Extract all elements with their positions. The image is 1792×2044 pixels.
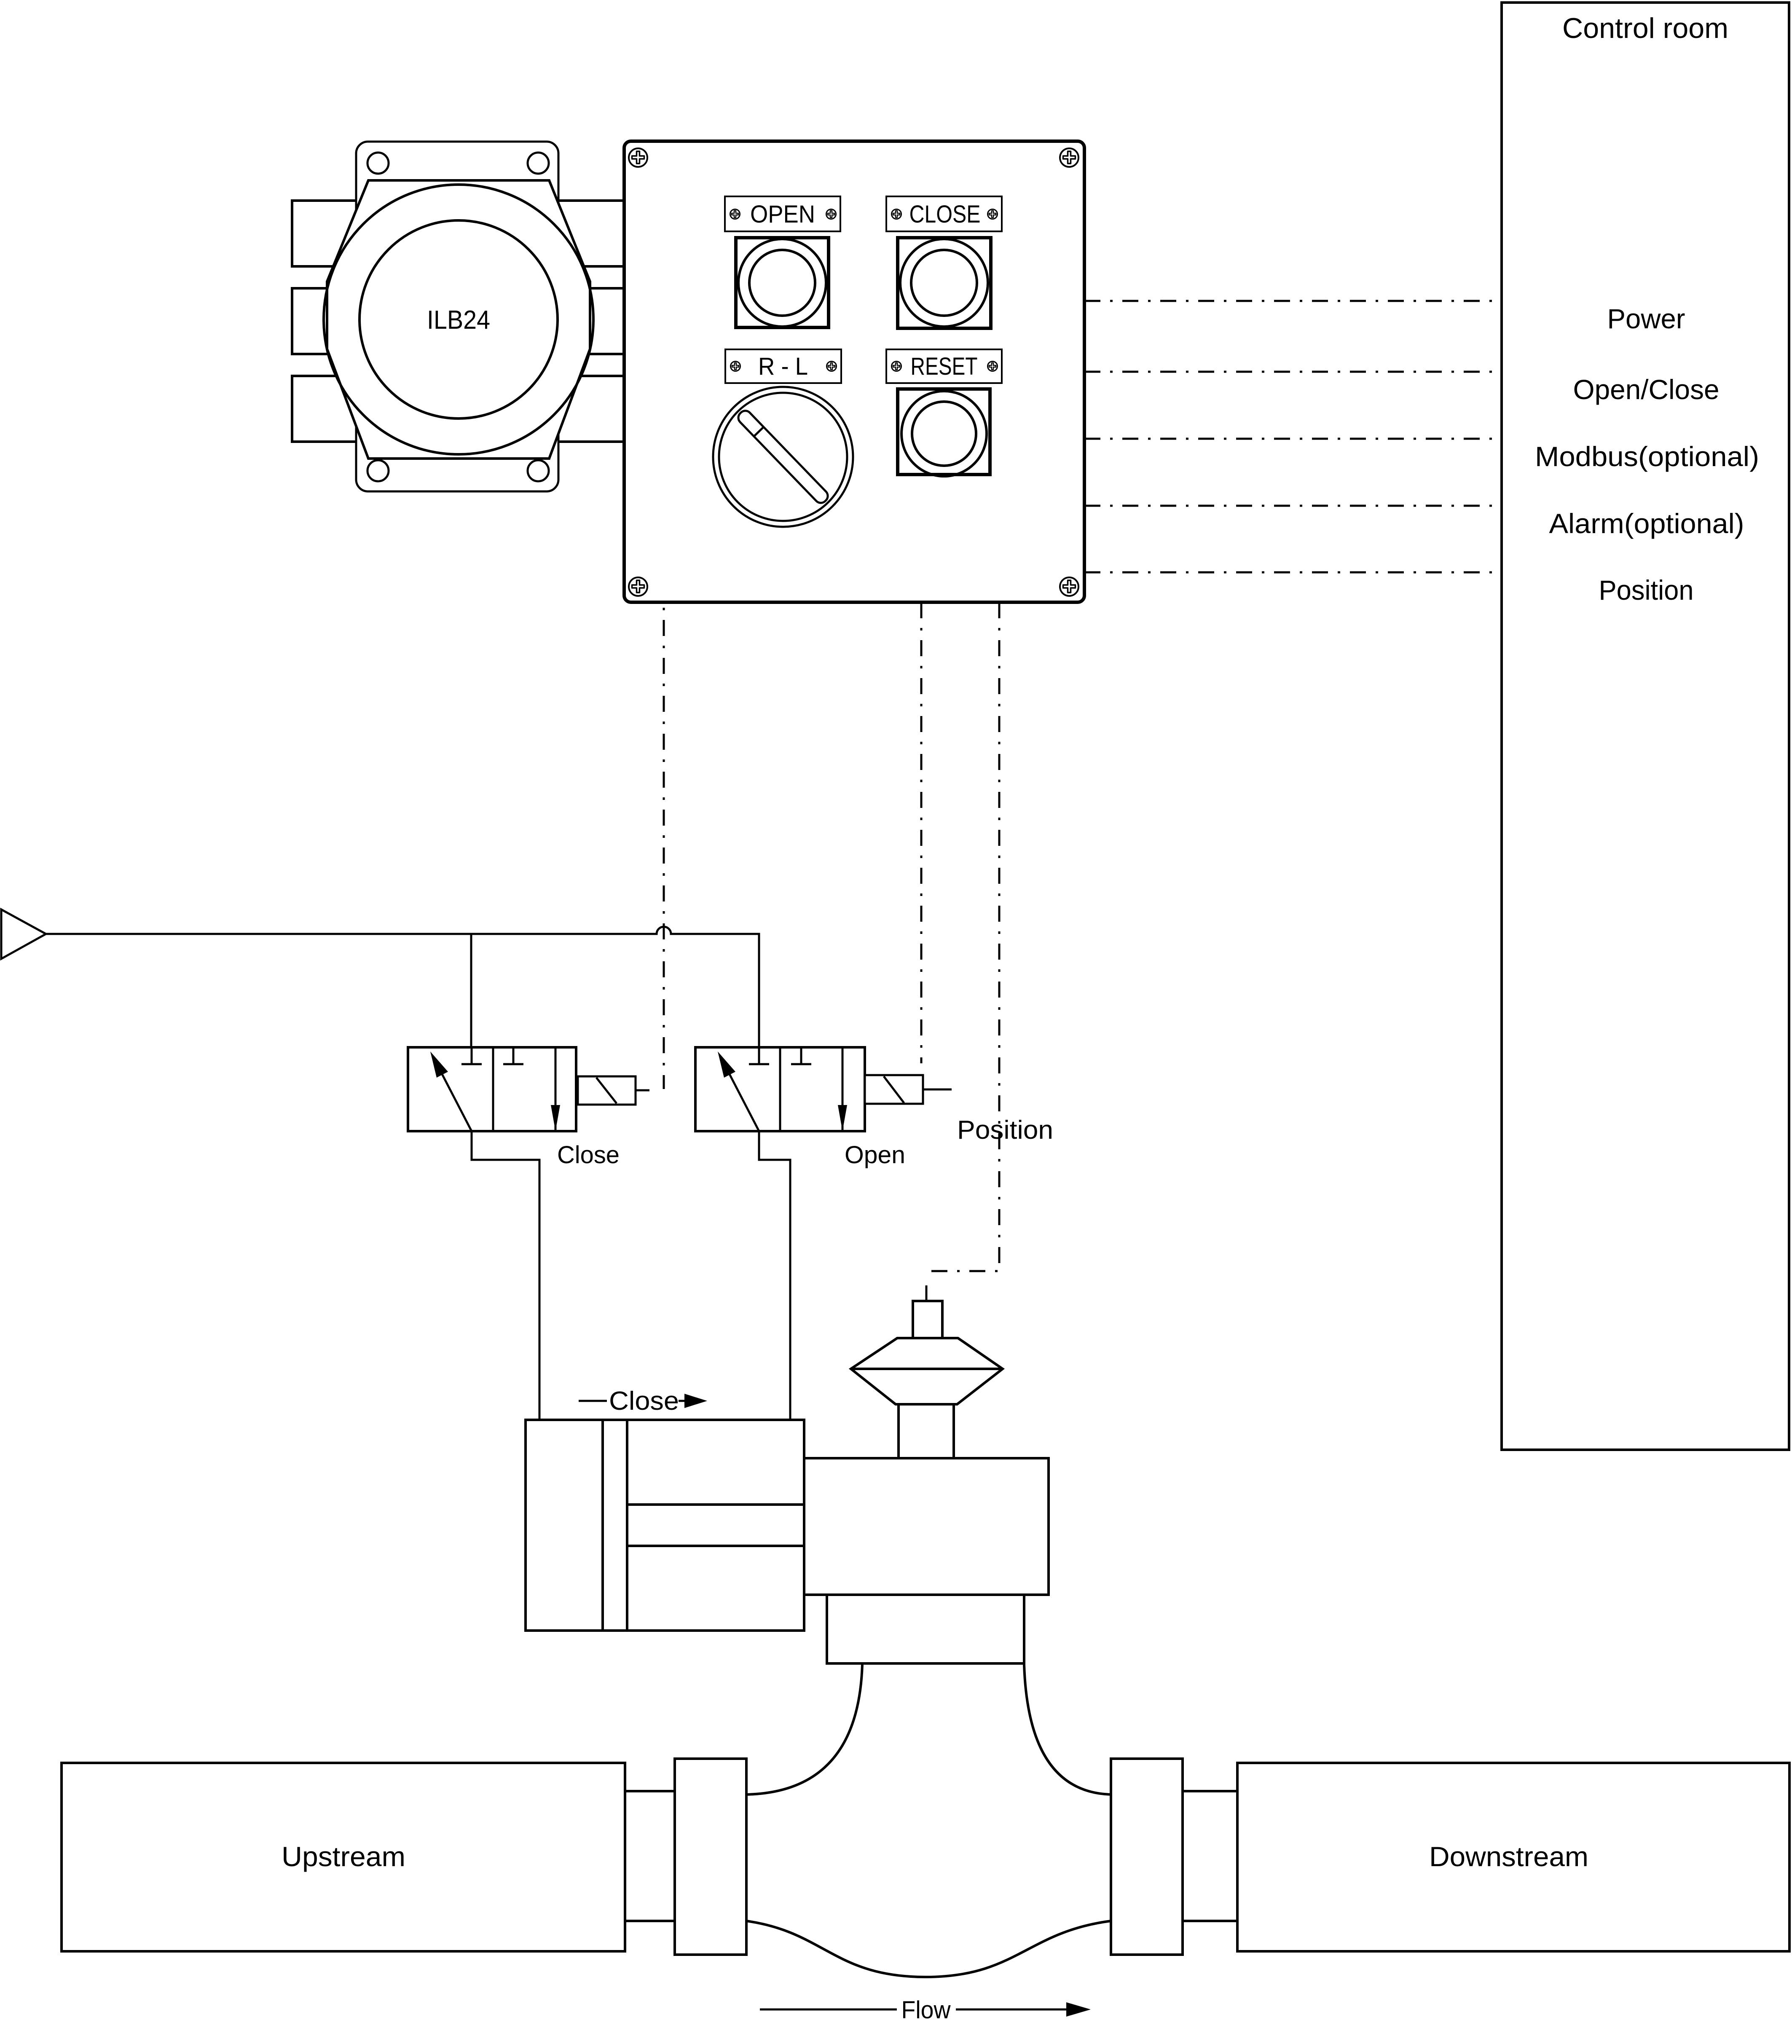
svg-text:Open/Close: Open/Close [1573, 374, 1720, 405]
svg-text:Close: Close [609, 1387, 679, 1416]
svg-text:Power: Power [1607, 303, 1685, 334]
svg-text:Position: Position [1599, 574, 1694, 606]
svg-text:Control room: Control room [1562, 12, 1728, 44]
svg-text:OPEN: OPEN [750, 201, 815, 228]
svg-text:Alarm(optional): Alarm(optional) [1549, 508, 1744, 539]
svg-text:Close: Close [557, 1141, 620, 1169]
svg-text:Flow: Flow [901, 1996, 951, 2024]
svg-text:RESET: RESET [911, 353, 978, 380]
svg-text:Upstream: Upstream [282, 1841, 405, 1872]
svg-text:R - L: R - L [758, 353, 808, 380]
svg-text:CLOSE: CLOSE [909, 201, 981, 228]
svg-text:Modbus(optional): Modbus(optional) [1535, 441, 1759, 472]
svg-text:ILB24: ILB24 [427, 306, 490, 335]
svg-text:Downstream: Downstream [1429, 1841, 1588, 1872]
svg-text:Position: Position [957, 1116, 1053, 1145]
svg-text:Open: Open [845, 1141, 905, 1169]
